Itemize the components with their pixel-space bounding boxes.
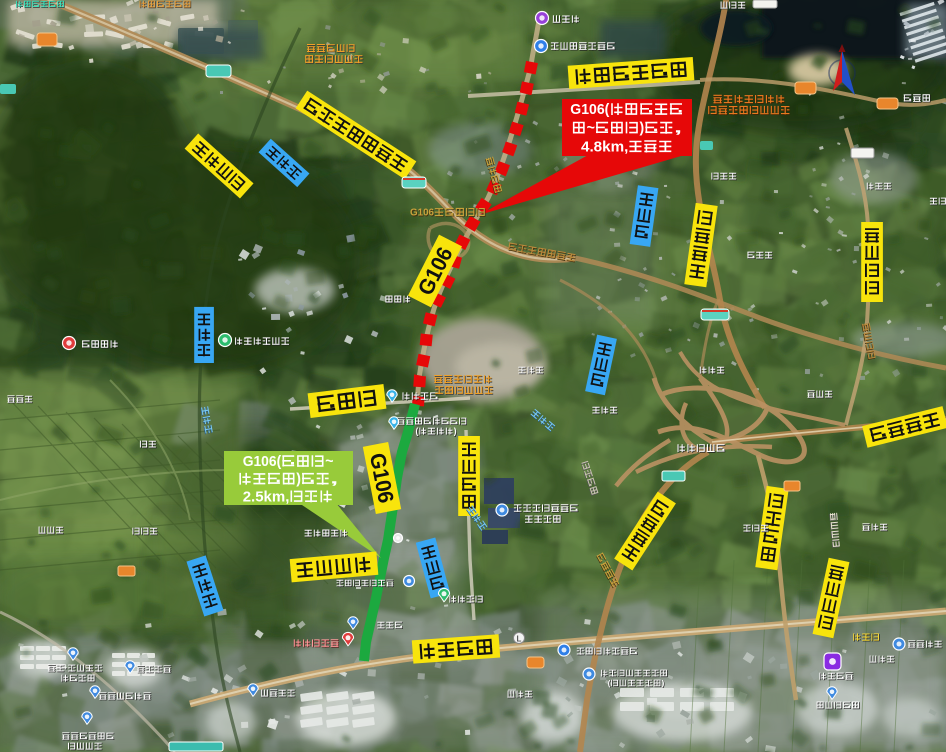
svg-text:~: ~ (325, 454, 334, 470)
svg-text:): ) (454, 426, 457, 436)
svg-text:,: , (330, 472, 338, 488)
svg-text:): ) (296, 472, 301, 488)
svg-text:·: · (65, 663, 68, 673)
svg-text:): ) (640, 121, 645, 137)
svg-text:): ) (662, 678, 665, 688)
svg-text:2.5km,: 2.5km, (243, 489, 290, 505)
svg-text:,: , (674, 121, 682, 137)
svg-text:(: ( (608, 678, 611, 688)
svg-text:G106(: G106( (243, 454, 282, 470)
svg-text:L: L (517, 635, 522, 644)
svg-text:G106(: G106( (570, 102, 609, 118)
svg-text:G106: G106 (410, 208, 434, 219)
svg-text:4.8km,: 4.8km, (581, 139, 628, 155)
svg-text:~: ~ (587, 121, 596, 137)
svg-text:(: ( (416, 426, 419, 436)
